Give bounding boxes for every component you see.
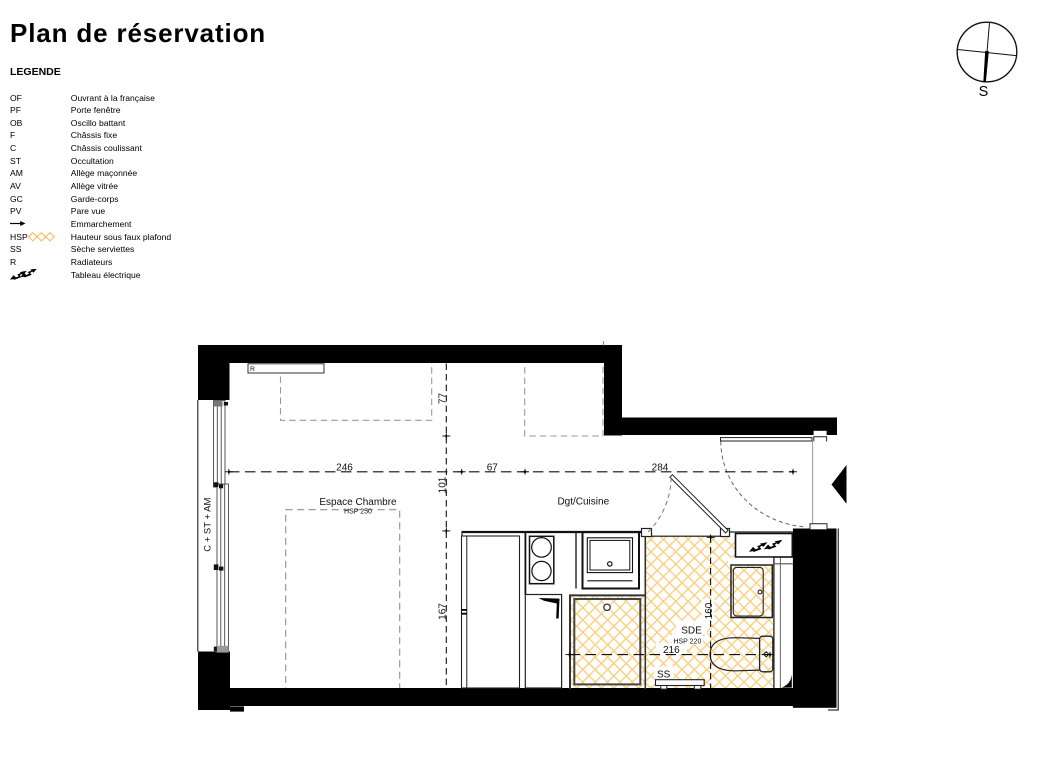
svg-text:Espace Chambre: Espace Chambre — [319, 497, 397, 508]
svg-text:284: 284 — [652, 462, 669, 473]
svg-text:Dgt/Cuisine: Dgt/Cuisine — [557, 497, 609, 508]
svg-text:101: 101 — [437, 476, 448, 493]
svg-text:167: 167 — [437, 603, 448, 620]
svg-text:216: 216 — [663, 645, 680, 656]
svg-text:R: R — [250, 366, 255, 373]
svg-text:246: 246 — [336, 462, 353, 473]
svg-text:C + ST + AM: C + ST + AM — [203, 498, 214, 552]
svg-text:SS: SS — [657, 670, 671, 681]
svg-text:SDE: SDE — [681, 626, 702, 637]
svg-text:S: S — [979, 84, 989, 100]
svg-text:160: 160 — [704, 602, 715, 619]
svg-text:HSP 250: HSP 250 — [344, 509, 372, 516]
svg-text:67: 67 — [487, 462, 499, 473]
svg-text:77: 77 — [437, 393, 448, 405]
